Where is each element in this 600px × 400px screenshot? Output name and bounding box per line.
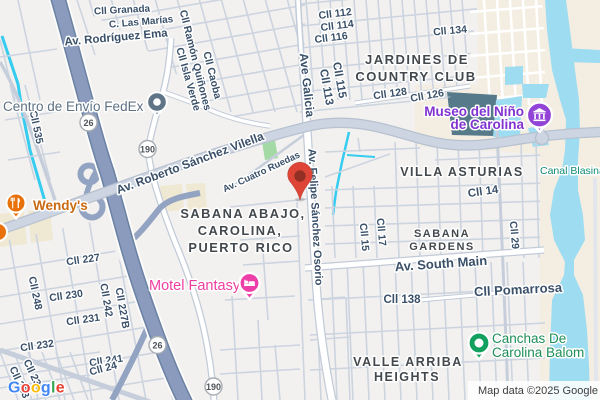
svg-text:Canal Blasina: Canal Blasina [540,165,600,177]
svg-text:Cll 15: Cll 15 [357,223,371,252]
svg-text:de Carolina: de Carolina [450,117,524,132]
svg-text:GARDENS: GARDENS [409,241,475,253]
svg-text:SABANA ABAJO,: SABANA ABAJO, [180,206,305,221]
svg-text:Motel Fantasy: Motel Fantasy [149,278,241,294]
svg-text:26: 26 [152,340,162,350]
svg-text:HEIGHTS: HEIGHTS [374,370,440,384]
svg-text:Cll 138: Cll 138 [383,294,421,306]
svg-text:Carolina Balom: Carolina Balom [492,345,584,360]
svg-text:CAROLINA,: CAROLINA, [198,223,283,238]
svg-text:Map data ©2025 Google: Map data ©2025 Google [478,385,598,397]
svg-text:PUERTO RICO: PUERTO RICO [188,240,293,255]
svg-text:VILLA ASTURIAS: VILLA ASTURIAS [400,165,524,179]
svg-text:Cll 29: Cll 29 [507,221,521,250]
svg-text:190: 190 [206,382,221,392]
svg-text:VALLE ARRIBA: VALLE ARRIBA [353,355,463,369]
svg-text:COUNTRY CLUB: COUNTRY CLUB [355,69,476,84]
svg-text:SABANA: SABANA [414,228,470,240]
svg-text:Google: Google [8,380,65,397]
svg-text:Canchas De: Canchas De [492,331,566,346]
svg-text:JARDINES DE: JARDINES DE [365,52,469,67]
svg-text:Cll 17: Cll 17 [374,218,388,247]
svg-text:Wendy's: Wendy's [33,198,88,213]
svg-text:190: 190 [140,144,155,154]
svg-text:26: 26 [83,118,93,128]
svg-text:Centro de Envío FedEx: Centro de Envío FedEx [3,99,144,114]
